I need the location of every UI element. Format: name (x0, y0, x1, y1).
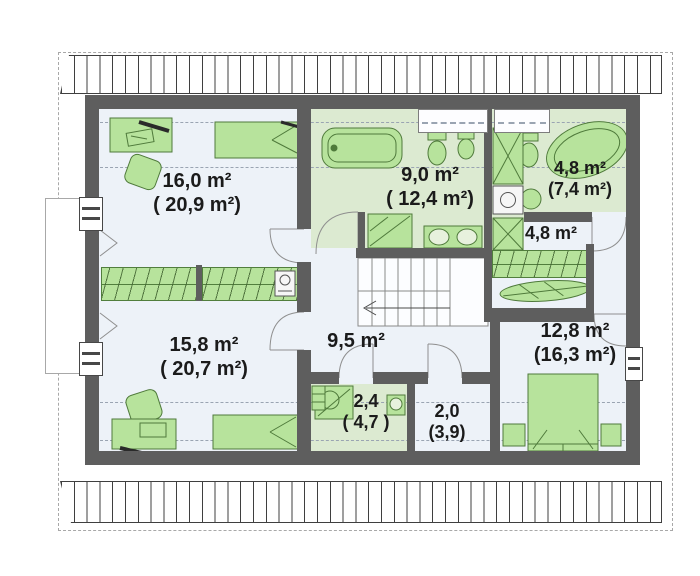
area-value: 9,5 m² (327, 330, 385, 354)
room-label-bedroom-top-left: 16,0 m² ( 20,9 m²) (153, 170, 241, 217)
door-arc-bedroom-top-left (270, 229, 304, 263)
bathtub-icon (322, 128, 402, 168)
window-left-1 (79, 197, 103, 231)
roof-window-niche (418, 109, 488, 133)
area-total: ( 20,7 m²) (160, 358, 248, 382)
wall-interior (311, 372, 339, 384)
wall-exterior-top (85, 95, 640, 109)
door-arc-bathroom-ensuite (592, 217, 626, 251)
area-value: 2,0 (428, 401, 465, 422)
wall-interior (462, 372, 492, 384)
roof-window-niche (494, 109, 550, 133)
wall-interior (356, 248, 484, 258)
area-total: ( 4,7 ) (342, 412, 389, 433)
area-value: 12,8 m² (534, 320, 616, 344)
door-arc-closet (428, 344, 462, 378)
washing-machine-icon (493, 186, 523, 214)
area-total: (16,3 m²) (534, 344, 616, 368)
bed-icon (215, 122, 300, 158)
area-value: 4,8 m² (525, 223, 577, 244)
area-value: 15,8 m² (160, 334, 248, 358)
double-bed-icon (528, 374, 598, 451)
wall-interior (358, 212, 365, 248)
wall-interior (524, 212, 592, 222)
room-label-bathroom-main: 9,0 m² ( 12,4 m²) (386, 164, 474, 211)
sink-icon (387, 395, 405, 415)
window-right (625, 347, 643, 381)
room-label-wardrobe-corridor: 4,8 m² (525, 223, 577, 244)
area-value: 4,8 m² (548, 158, 612, 179)
door-arc-bathroom-main (316, 212, 358, 254)
shelf-icon (312, 386, 325, 410)
wall-interior (490, 322, 500, 451)
nightstand-icon (503, 424, 525, 446)
wall-wardrobe-divider (196, 265, 202, 301)
wall-interior (297, 109, 311, 229)
room-label-bedroom-right: 12,8 m² (16,3 m²) (534, 320, 616, 367)
area-value: 9,0 m² (386, 164, 474, 188)
area-value: 16,0 m² (153, 170, 241, 194)
sink-icon (521, 189, 541, 209)
appliance-icon (275, 271, 295, 296)
area-total: (7,4 m²) (548, 179, 612, 200)
wall-exterior-left (85, 95, 99, 465)
wall-interior (297, 262, 311, 312)
wall-exterior-bottom (85, 451, 640, 465)
area-total: ( 12,4 m²) (386, 188, 474, 212)
wall-interior (297, 350, 311, 451)
desk-icon (112, 419, 176, 449)
room-label-shower-room: 2,4 ( 4,7 ) (342, 391, 389, 433)
window-swing-icon (100, 230, 117, 339)
toilet-icon (428, 132, 446, 165)
double-sink-icon (424, 226, 482, 248)
floor-plan: 16,0 m² ( 20,9 m²) 9,0 m² ( 12,4 m²) 4,8… (0, 0, 700, 576)
area-total: (3,9) (428, 422, 465, 443)
room-label-bathroom-ensuite: 4,8 m² (7,4 m²) (548, 158, 612, 200)
shower-icon (368, 214, 412, 248)
area-value: 2,4 (342, 391, 389, 412)
door-arc-bedroom-bottom-left (270, 312, 304, 350)
wall-interior (484, 252, 492, 308)
bed-icon (213, 415, 298, 449)
wall-interior (586, 244, 594, 308)
room-label-closet: 2,0 (3,9) (428, 401, 465, 443)
wall-interior (407, 384, 415, 451)
ironing-board-icon (499, 278, 590, 304)
room-label-hall: 9,5 m² (327, 330, 385, 354)
room-label-bedroom-bottom-left: 15,8 m² ( 20,7 m²) (160, 334, 248, 381)
wall-interior (373, 372, 428, 384)
wall-exterior-right (626, 95, 640, 465)
cabinet-icon (493, 128, 523, 184)
nightstand-icon (601, 424, 621, 446)
cabinet-icon (493, 218, 523, 250)
area-total: ( 20,9 m²) (153, 194, 241, 218)
fixtures-layer (0, 0, 700, 576)
bidet-icon (458, 132, 474, 159)
window-left-2 (79, 342, 103, 376)
staircase (358, 258, 488, 326)
